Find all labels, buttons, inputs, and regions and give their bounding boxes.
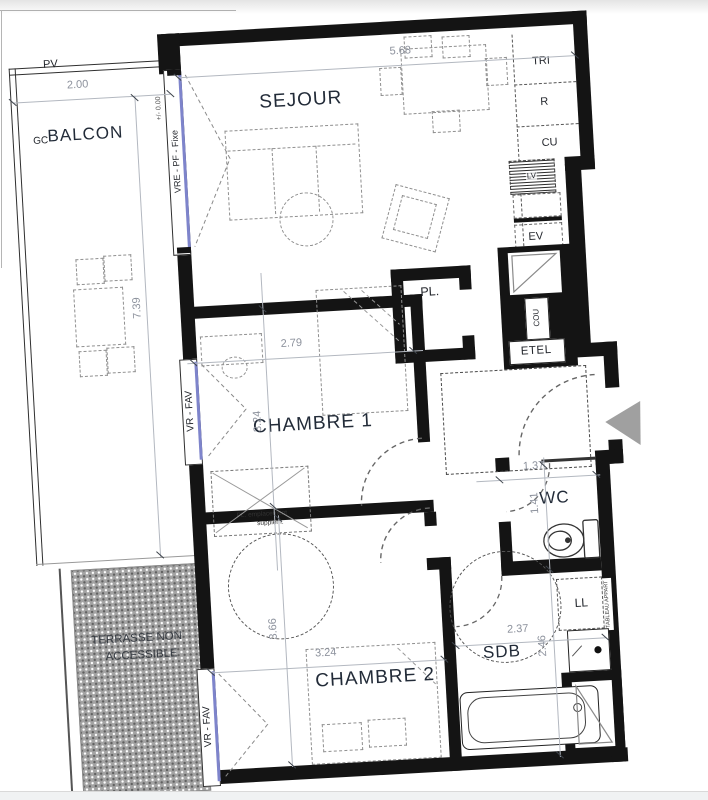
shaft-kitchen-triangle [512,253,558,291]
chambre2-door-arc [378,508,433,563]
floor-plan: TERRASSE NON ACCESSIBLE PV GC BALCON VRE… [0,0,708,800]
shaft2-triangle [576,684,612,744]
bottom-page-strip [0,791,708,800]
dim-sdb-h: 2.46 [536,635,549,657]
window-vr2-swing [219,671,271,777]
dim-chambre2-h: 3.66 [267,618,280,640]
cabinet-outlet-dot [594,646,602,654]
cabinet-tick [572,646,583,657]
entrance-arrow-icon [604,401,642,447]
sdb-door-arc [454,576,505,627]
floorplan-page: TERRASSE NON ACCESSIBLE PV GC BALCON VRE… [0,0,708,800]
bed1-fold-line [344,288,401,345]
dim-chambre1-w: 2.79 [280,337,302,350]
dim-wc-h: 1.41 [528,492,541,514]
window-vr1-swing [201,362,248,458]
wc-room-label: WC [539,487,570,509]
window-fixed-swing [185,73,235,247]
sejour-room-label: SEJOUR [259,87,343,114]
dim-balcon-h: 7.39 [131,297,144,319]
closet-extra-cross [213,468,308,533]
dim-chambre2-w: 3.24 [315,646,337,659]
entry-door-arc [515,375,599,459]
chambre1-door-arc [358,438,425,505]
dim-sejour-w: 5.68 [389,44,411,57]
toilet-icon [543,520,600,561]
dim-balcon-w: 2.00 [67,78,89,91]
bed1-fold-line [362,288,400,326]
property-line-top [0,10,236,11]
dim-wc-w: 1.37 [523,459,545,472]
dim-sdb-w: 2.37 [507,623,529,636]
dim-chambre1-h: 3.24 [251,410,264,432]
